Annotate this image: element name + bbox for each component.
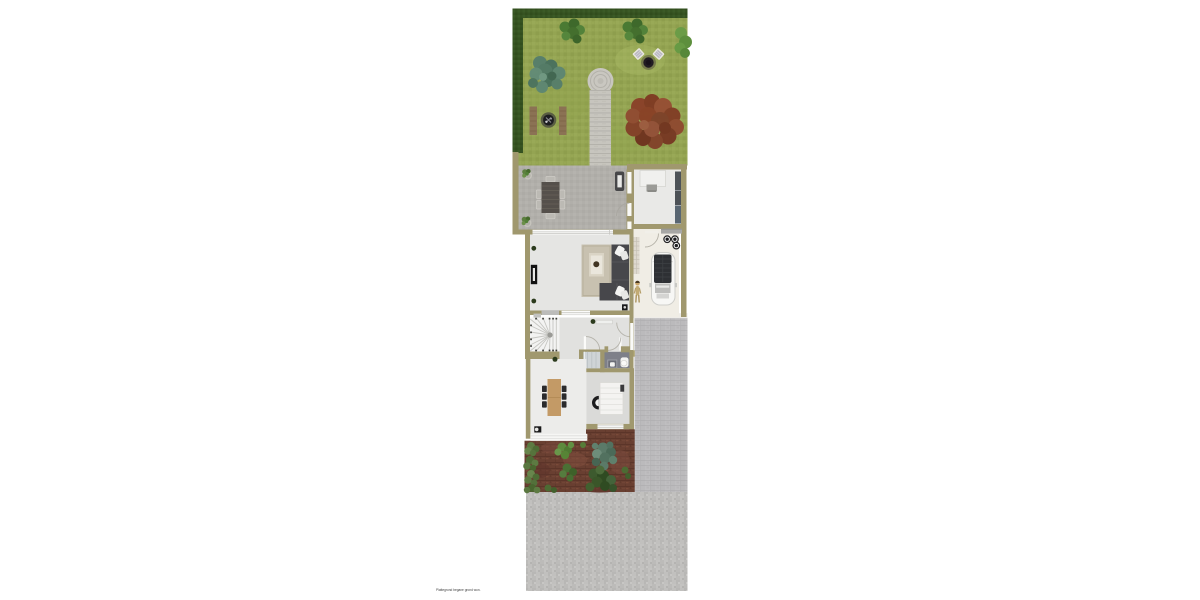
svg-text:Plattegrond begane grond won.: Plattegrond begane grond won. — [436, 588, 481, 592]
